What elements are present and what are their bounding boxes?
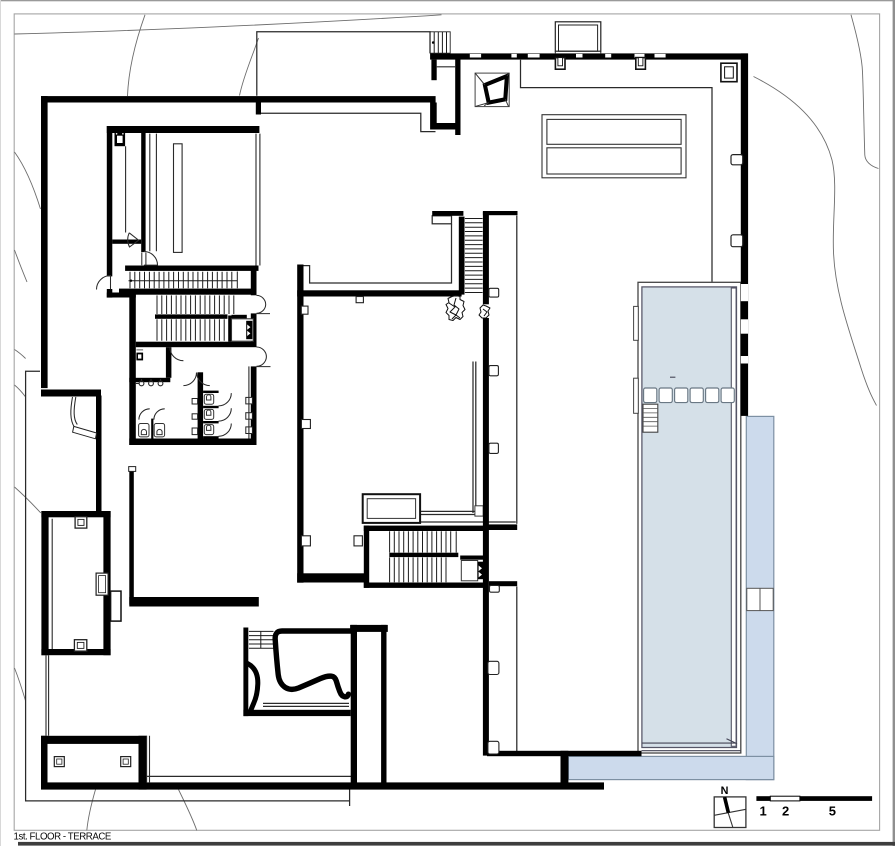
svg-text:5: 5: [829, 804, 836, 819]
svg-text:1st. FLOOR - TERRACE: 1st. FLOOR - TERRACE: [14, 831, 112, 842]
svg-text:1: 1: [760, 804, 767, 819]
svg-text:2: 2: [782, 804, 789, 819]
svg-text:N: N: [721, 785, 729, 797]
